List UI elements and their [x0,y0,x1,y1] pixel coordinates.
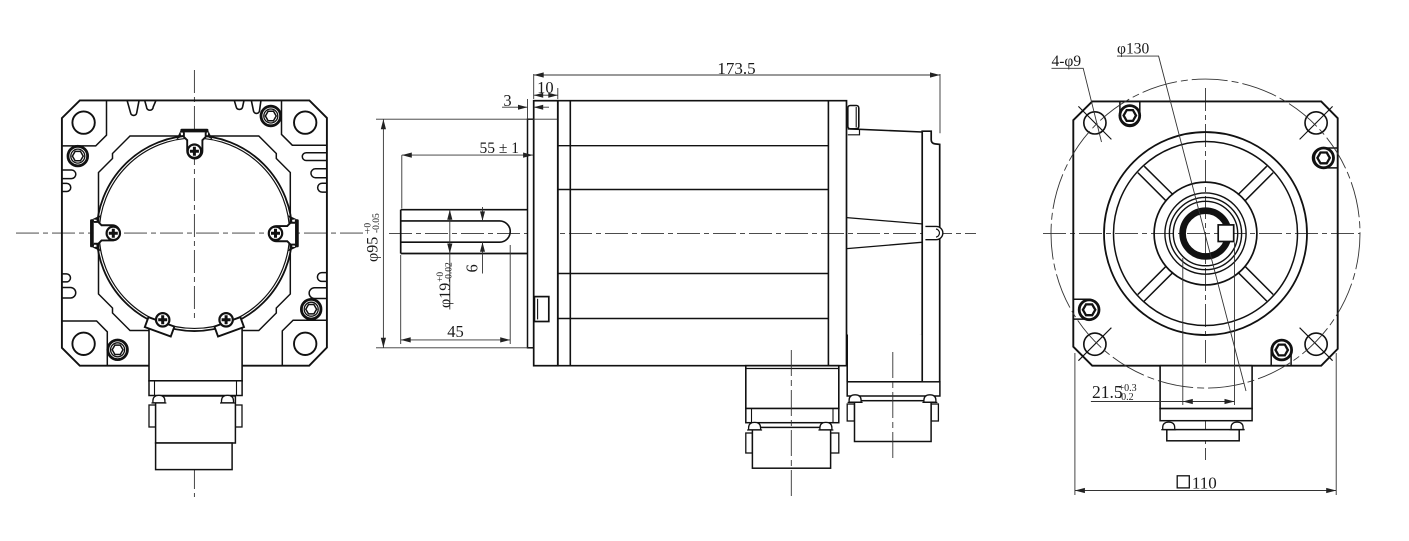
svg-text:10: 10 [537,78,554,97]
svg-text:φ19: φ19 [437,283,454,308]
svg-text:55 ± 1: 55 ± 1 [480,140,520,157]
svg-text:110: 110 [1192,474,1217,493]
svg-text:6: 6 [463,264,482,272]
svg-text:173.5: 173.5 [717,59,755,78]
svg-text:45: 45 [447,322,464,341]
svg-text:-0.02: -0.02 [445,262,455,282]
svg-text:φ95: φ95 [365,237,382,262]
svg-text:φ130: φ130 [1117,41,1149,58]
svg-text:-0.05: -0.05 [372,213,382,233]
svg-text:4-φ9: 4-φ9 [1052,53,1082,70]
svg-text:-0.2: -0.2 [1118,392,1134,403]
svg-text:3: 3 [503,91,511,110]
